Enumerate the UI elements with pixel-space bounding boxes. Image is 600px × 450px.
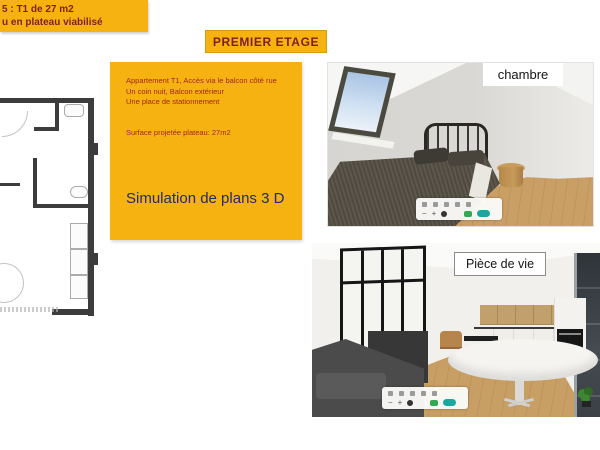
presentation-slide: 5 : T1 de 27 m2 u en plateau viabilisé P…	[0, 0, 600, 450]
simulation-title: Simulation de plans 3 D	[126, 190, 302, 207]
bedroom-label: chambre	[483, 63, 563, 86]
tool-icon	[421, 391, 426, 396]
plan-wall	[33, 204, 90, 208]
living-room-render: − + Pièce de vie	[312, 243, 600, 417]
plan-wall	[52, 309, 94, 315]
tool-icon	[410, 391, 415, 396]
tool-icon	[399, 391, 404, 396]
toolbar-controls-row: − +	[388, 398, 462, 407]
zoom-in-icon: +	[398, 399, 403, 407]
dining-chair	[440, 331, 462, 349]
kitchen-unit	[70, 275, 88, 299]
tool-icon	[388, 391, 393, 396]
tool-icon	[432, 391, 437, 396]
surface-line: Surface projetée plateau: 27m2	[126, 128, 302, 139]
dining-table-fixture	[0, 263, 24, 303]
compass-icon	[407, 400, 413, 406]
kitchen-upper-cabinets	[480, 305, 554, 325]
plan-wall	[0, 183, 20, 186]
sink-fixture	[64, 104, 84, 117]
kitchen-unit	[70, 249, 88, 275]
kitchen-unit	[70, 223, 88, 249]
screenshot-icon	[430, 400, 438, 406]
plan-wall	[0, 98, 92, 103]
plant	[578, 387, 594, 407]
viewer-toolbar: − +	[416, 198, 502, 220]
balcony-door-mark	[94, 143, 98, 155]
description-line: Une place de stationnement	[126, 97, 302, 108]
view-toggle-icon	[477, 210, 490, 217]
description-line: Un coin nuit, Balcon extérieur	[126, 87, 302, 98]
plan-wall	[33, 158, 37, 208]
description-box: Appartement T1, Accès via le balcon côté…	[110, 62, 302, 240]
tool-icon	[444, 202, 449, 207]
screenshot-icon	[464, 211, 472, 217]
sofa-cushion	[316, 373, 386, 399]
tool-icon	[422, 202, 427, 207]
lot-info-box: 5 : T1 de 27 m2 u en plateau viabilisé	[0, 0, 148, 32]
zoom-out-icon: −	[422, 210, 427, 218]
floor-title-box: PREMIER ETAGE	[205, 30, 327, 53]
side-table	[499, 167, 523, 187]
door-arc	[2, 111, 28, 137]
plant-pot	[582, 401, 591, 407]
tool-icon	[455, 202, 460, 207]
viewer-toolbar: − +	[382, 387, 468, 409]
toilet-fixture	[70, 186, 88, 198]
floor-plan	[0, 95, 102, 323]
round-table	[448, 339, 598, 381]
tool-icon	[433, 202, 438, 207]
zoom-out-icon: −	[388, 399, 393, 407]
living-room-label: Pièce de vie	[454, 252, 546, 276]
bedroom-render: − + chambre	[328, 63, 593, 226]
lot-info-line2: u en plateau viabilisé	[2, 16, 146, 29]
tool-icon	[466, 202, 471, 207]
bedroom-label-text: chambre	[498, 67, 549, 82]
plan-watermark	[0, 307, 58, 312]
toolbar-controls-row: − +	[422, 209, 496, 218]
toolbar-icons-row	[388, 390, 462, 396]
plan-wall	[34, 127, 59, 131]
description-line: Appartement T1, Accès via le balcon côté…	[126, 76, 302, 87]
lot-info-line1: 5 : T1 de 27 m2	[2, 3, 146, 16]
zoom-in-icon: +	[432, 210, 437, 218]
living-room-label-text: Pièce de vie	[466, 257, 534, 271]
toolbar-icons-row	[422, 201, 496, 207]
compass-icon	[441, 211, 447, 217]
view-toggle-icon	[443, 399, 456, 406]
floor-title: PREMIER ETAGE	[213, 35, 319, 49]
balcony-door-mark	[94, 253, 98, 265]
